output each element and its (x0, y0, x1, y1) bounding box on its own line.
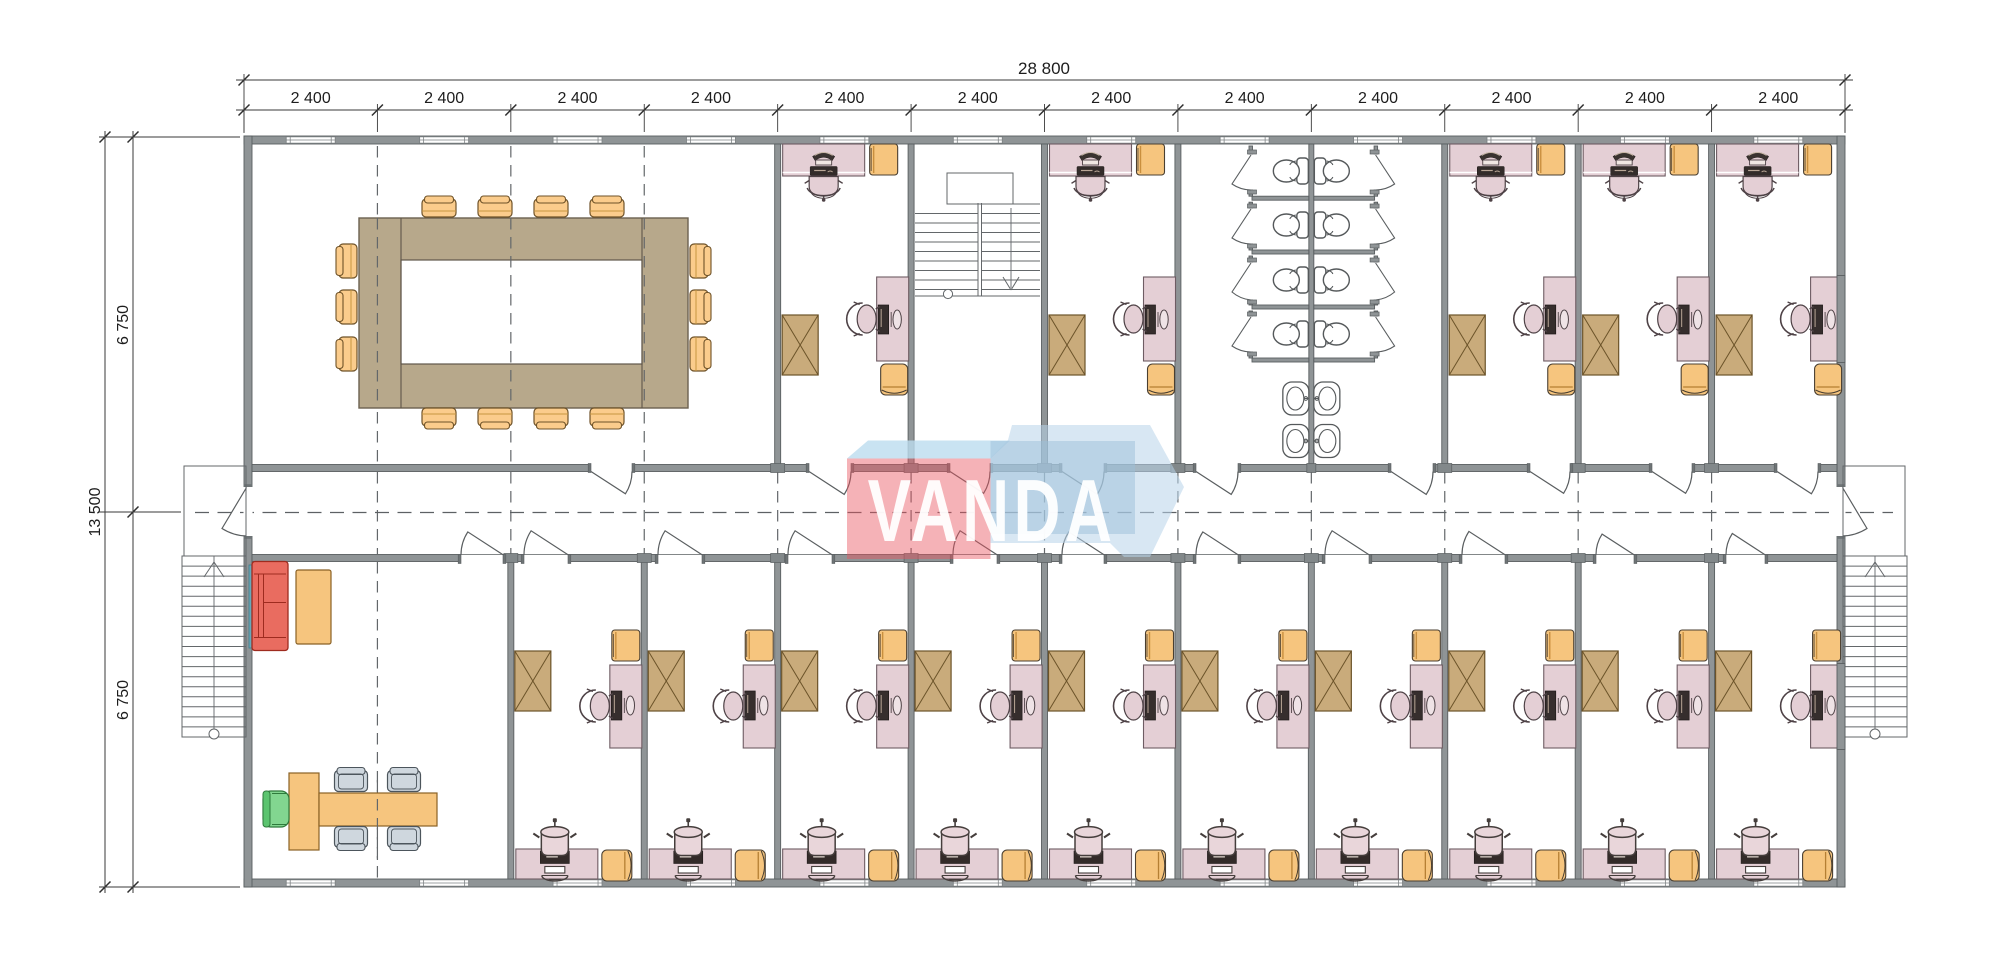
svg-text:2 400: 2 400 (1091, 90, 1131, 107)
svg-text:2 400: 2 400 (1491, 90, 1531, 107)
svg-text:6 750: 6 750 (115, 680, 132, 720)
svg-text:6 750: 6 750 (115, 305, 132, 345)
svg-text:2 400: 2 400 (958, 90, 998, 107)
svg-text:2 400: 2 400 (1358, 90, 1398, 107)
svg-text:2 400: 2 400 (291, 90, 331, 107)
svg-text:2 400: 2 400 (1225, 90, 1265, 107)
svg-text:28 800: 28 800 (1018, 59, 1070, 78)
svg-text:2 400: 2 400 (691, 90, 731, 107)
svg-text:VANDA: VANDA (868, 463, 1117, 561)
svg-text:2 400: 2 400 (824, 90, 864, 107)
svg-text:2 400: 2 400 (558, 90, 598, 107)
svg-text:2 400: 2 400 (424, 90, 464, 107)
svg-text:2 400: 2 400 (1758, 90, 1798, 107)
svg-text:2 400: 2 400 (1625, 90, 1665, 107)
